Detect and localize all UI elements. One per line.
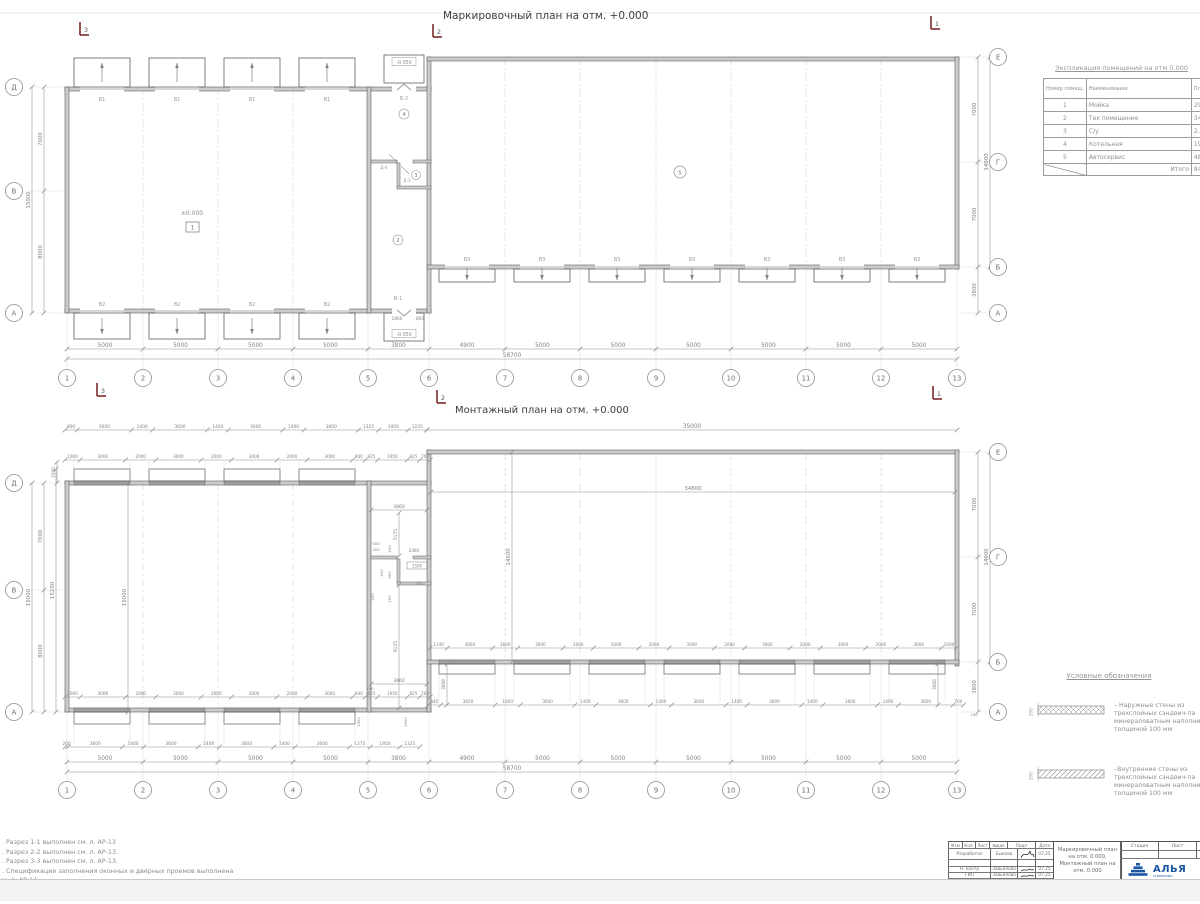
svg-text:300: 300 <box>372 547 380 552</box>
note-line: . Разрез 1-1 выполнен см. л. АР-13 <box>2 838 233 848</box>
svg-text:В-1: В-1 <box>394 296 402 302</box>
svg-text:8: 8 <box>578 786 582 794</box>
top-plan-dims: 5000500050005000380049005000500050005000… <box>26 55 992 362</box>
svg-text:В3: В3 <box>839 257 846 263</box>
bottom-plan-dims: 8003600140036001400360014003600132519501… <box>26 424 992 774</box>
svg-text:35000: 35000 <box>683 424 702 430</box>
svg-text:1600: 1600 <box>403 717 408 727</box>
svg-text:2: 2 <box>396 238 399 244</box>
sheet-edge <box>0 879 1200 901</box>
svg-text:1400: 1400 <box>288 424 299 430</box>
svg-text:В1: В1 <box>174 97 181 103</box>
svg-text:3000: 3000 <box>441 679 446 690</box>
company-logo: АЛЬЯ строительн <box>1120 859 1200 879</box>
svg-text:15000: 15000 <box>26 191 32 209</box>
svg-text:2: 2 <box>141 374 145 382</box>
svg-text:1140: 1140 <box>433 642 444 647</box>
title-block: ИзмКол.Лист№докПодпДатаРазработалБыкова0… <box>948 841 1200 880</box>
svg-text:3000: 3000 <box>932 679 937 690</box>
svg-text:1400: 1400 <box>127 741 138 747</box>
top-plan-openings: -0.050-0.050 <box>74 55 945 341</box>
svg-text:4: 4 <box>402 112 405 118</box>
table-row: 3С/у2,2 <box>1044 125 1200 138</box>
svg-text:-0.050: -0.050 <box>396 60 411 66</box>
svg-text:5000: 5000 <box>535 756 550 762</box>
room-table-title: Экспликация помещений на отм 0.000 <box>1043 64 1200 72</box>
stamp-cell: Кол. <box>962 842 975 849</box>
svg-text:В3: В3 <box>539 257 546 263</box>
svg-text:3: 3 <box>216 374 220 382</box>
svg-text:2: 2 <box>441 394 445 402</box>
legend-item-inner-wall: 100 –Внутренние стены изтрехслойных сэнд… <box>1028 766 1200 798</box>
top-plan-walls <box>65 57 959 313</box>
svg-text:4900: 4900 <box>460 756 475 762</box>
svg-text:7000: 7000 <box>972 207 978 221</box>
svg-text:7000: 7000 <box>972 102 978 116</box>
svg-text:В2: В2 <box>249 302 256 308</box>
svg-text:В3: В3 <box>614 257 621 263</box>
svg-text:825: 825 <box>409 691 417 696</box>
svg-text:3: 3 <box>216 786 220 794</box>
svg-text:Б: Б <box>996 658 1001 666</box>
svg-text:3: 3 <box>101 387 105 395</box>
svg-text:12: 12 <box>877 786 886 794</box>
svg-text:1950: 1950 <box>387 691 398 696</box>
svg-text:2000: 2000 <box>211 454 222 459</box>
svg-text:1000: 1000 <box>67 691 78 696</box>
svg-text:5000: 5000 <box>611 343 626 349</box>
diagonal-cell <box>1044 164 1087 176</box>
svg-text:1400: 1400 <box>137 424 148 430</box>
svg-text:3000: 3000 <box>324 691 335 696</box>
svg-text:Е: Е <box>996 53 1000 61</box>
svg-text:1325: 1325 <box>404 741 415 747</box>
svg-text:5000: 5000 <box>761 343 776 349</box>
svg-text:34800: 34800 <box>684 486 702 492</box>
svg-text:8125: 8125 <box>393 641 399 652</box>
svg-text:5000: 5000 <box>912 343 927 349</box>
top-plan-labels: В1В1В1В1В2В2В2В2В3В3В3В3В3В3В3В-2В-1Д-4Д… <box>99 10 921 321</box>
table-row: 5Автосервис486, <box>1044 151 1200 164</box>
svg-text:3000: 3000 <box>173 454 184 459</box>
svg-text:2000: 2000 <box>135 691 146 696</box>
svg-text:3600: 3600 <box>845 699 856 704</box>
room-number: 3 <box>1044 125 1087 138</box>
table-total-row: Итого841, <box>1044 164 1200 176</box>
room-name: Автосервис <box>1086 151 1191 164</box>
svg-text:8: 8 <box>578 374 582 382</box>
svg-text:5000: 5000 <box>98 343 113 349</box>
svg-text:3600: 3600 <box>250 424 261 430</box>
svg-text:5000: 5000 <box>98 756 113 762</box>
svg-text:4900: 4900 <box>460 343 475 349</box>
total-label: Итого <box>1086 164 1191 176</box>
svg-text:15000: 15000 <box>122 588 128 606</box>
svg-text:3600: 3600 <box>618 699 629 704</box>
svg-text:В3: В3 <box>464 257 471 263</box>
svg-text:Д-3: Д-3 <box>403 178 411 183</box>
room-name: Мойка <box>1086 99 1191 112</box>
svg-text:3000: 3000 <box>173 691 184 696</box>
svg-text:1660: 1660 <box>500 642 511 647</box>
legend-line: – Наружные стены из <box>1114 702 1200 710</box>
svg-text:В3: В3 <box>689 257 696 263</box>
svg-text:3800: 3800 <box>972 680 978 694</box>
svg-text:В3: В3 <box>764 257 771 263</box>
svg-text:700: 700 <box>421 454 429 459</box>
svg-text:В1: В1 <box>99 97 106 103</box>
svg-text:Б: Б <box>996 263 1001 271</box>
legend-line: трехслойных сэндвич-па <box>1114 710 1200 718</box>
svg-text:12: 12 <box>877 374 886 382</box>
svg-text:5000: 5000 <box>535 343 550 349</box>
extra-col <box>1196 842 1200 851</box>
svg-text:А: А <box>996 309 1001 317</box>
svg-text:3800: 3800 <box>391 756 406 762</box>
svg-text:15000: 15000 <box>26 588 32 606</box>
svg-text:900: 900 <box>387 571 392 579</box>
svg-text:-0.050: -0.050 <box>396 332 411 338</box>
svg-text:3: 3 <box>84 26 88 34</box>
svg-text:А: А <box>12 708 17 716</box>
col-name: Наименование <box>1086 79 1191 99</box>
cad-drawing: -0.050-0.050В1В1В1В1В2В2В2В2В3В3В3В3В3В3… <box>0 0 1200 900</box>
legend-text-outer: – Наружные стены изтрехслойных сэндвич-п… <box>1114 702 1200 734</box>
room-number: 5 <box>1044 151 1087 164</box>
note-line: . Разрез 2-2 выполнен см. л. АР-13. <box>2 848 233 858</box>
document-title-line2: Монтажный план на отм. 0.000 <box>1054 861 1121 875</box>
svg-text:5000: 5000 <box>323 343 338 349</box>
legend: Условные обозначения 100 – Наружные стен… <box>1028 672 1200 798</box>
svg-text:3000: 3000 <box>465 642 476 647</box>
svg-text:2: 2 <box>437 28 441 36</box>
stamp-cell: Лист <box>975 842 989 849</box>
svg-text:800: 800 <box>416 316 424 321</box>
svg-text:1225: 1225 <box>412 424 423 430</box>
svg-text:В2: В2 <box>99 302 106 308</box>
svg-text:7000: 7000 <box>972 497 978 511</box>
svg-text:4: 4 <box>291 786 295 794</box>
svg-text:2000: 2000 <box>800 642 811 647</box>
svg-text:Д: Д <box>11 479 16 487</box>
svg-text:Е: Е <box>996 448 1000 456</box>
svg-text:1325: 1325 <box>363 424 374 430</box>
svg-text:3000: 3000 <box>535 642 546 647</box>
svg-text:3600: 3600 <box>542 699 553 704</box>
svg-text:Д: Д <box>11 83 16 91</box>
svg-text:В-2: В-2 <box>400 96 408 102</box>
svg-text:1000: 1000 <box>67 454 78 459</box>
svg-text:А: А <box>996 708 1001 716</box>
legend-text-inner: –Внутренние стены изтрехслойных сэндвич-… <box>1114 766 1200 798</box>
svg-text:1950: 1950 <box>379 741 390 747</box>
svg-text:11: 11 <box>802 786 811 794</box>
svg-text:6: 6 <box>427 374 431 382</box>
stage-label: Стадия <box>1120 842 1158 851</box>
svg-text:11: 11 <box>802 374 811 382</box>
stamp-cell: №док <box>989 842 1007 849</box>
svg-text:1800: 1800 <box>392 316 403 321</box>
stamp-cell: Разработал <box>948 849 990 860</box>
svg-text:500: 500 <box>372 541 380 546</box>
svg-text:14500: 14500 <box>506 548 512 566</box>
svg-text:1400: 1400 <box>807 699 818 704</box>
svg-text:Г: Г <box>996 553 1000 561</box>
svg-text:9: 9 <box>654 374 658 382</box>
svg-text:8000: 8000 <box>38 644 44 658</box>
legend-line: толщиной 100 мм <box>1114 726 1200 734</box>
room-explication-table: Экспликация помещений на отм 0.000 Номер… <box>1043 64 1200 176</box>
svg-text:5000: 5000 <box>323 756 338 762</box>
signature-icon <box>1019 873 1035 878</box>
stamp-cell <box>1035 860 1053 867</box>
svg-text:3000: 3000 <box>249 454 260 459</box>
svg-text:3860: 3860 <box>393 678 405 684</box>
svg-text:3800: 3800 <box>972 283 978 297</box>
svg-text:3800: 3800 <box>391 343 406 349</box>
logo-subtext: строительн <box>1153 874 1172 878</box>
document-title-line1: Маркировочный план на отм. 0.000, <box>1054 847 1121 861</box>
svg-text:700: 700 <box>421 691 429 696</box>
legend-dim-label: 100 <box>1030 709 1035 717</box>
svg-text:2000: 2000 <box>135 454 146 459</box>
svg-text:Д-4: Д-4 <box>380 165 388 170</box>
svg-text:1500: 1500 <box>412 564 423 569</box>
svg-text:5: 5 <box>366 374 370 382</box>
svg-text:3600: 3600 <box>90 741 101 747</box>
svg-text:1500: 1500 <box>51 467 56 478</box>
svg-text:5000: 5000 <box>173 756 188 762</box>
svg-text:3000: 3000 <box>97 691 108 696</box>
svg-text:1400: 1400 <box>212 424 223 430</box>
svg-text:1400: 1400 <box>203 741 214 747</box>
svg-text:3000: 3000 <box>97 454 108 459</box>
svg-text:3000: 3000 <box>611 642 622 647</box>
svg-text:825: 825 <box>409 454 417 459</box>
svg-text:3000: 3000 <box>838 642 849 647</box>
svg-text:2000: 2000 <box>287 691 298 696</box>
svg-text:7000: 7000 <box>38 529 44 543</box>
svg-text:5000: 5000 <box>912 756 927 762</box>
room-area: 297, <box>1191 99 1200 112</box>
room-name: Котельная <box>1086 138 1191 151</box>
svg-text:1400: 1400 <box>883 699 894 704</box>
svg-text:1400: 1400 <box>731 699 742 704</box>
stamp-cell <box>1017 860 1035 867</box>
svg-text:840: 840 <box>355 691 363 696</box>
svg-text:200: 200 <box>370 593 375 601</box>
svg-text:±0.000: ±0.000 <box>181 210 203 217</box>
svg-text:5000: 5000 <box>248 756 263 762</box>
svg-text:3600: 3600 <box>241 741 252 747</box>
svg-text:7000: 7000 <box>38 132 44 146</box>
stage-sheet-cells <box>1120 851 1200 859</box>
svg-text:1: 1 <box>65 374 69 382</box>
svg-text:3600: 3600 <box>165 741 176 747</box>
svg-text:7: 7 <box>503 374 507 382</box>
svg-text:3600: 3600 <box>693 699 704 704</box>
note-line: . Спецификация заполнения оконных и двер… <box>2 867 233 877</box>
room-name: С/у <box>1086 125 1191 138</box>
svg-text:100: 100 <box>415 581 423 586</box>
table-row: 2Тех помещение34, <box>1044 112 1200 125</box>
svg-text:3600: 3600 <box>99 424 110 430</box>
svg-text:Г: Г <box>996 158 1000 166</box>
svg-text:1375: 1375 <box>354 741 365 747</box>
svg-text:10: 10 <box>727 374 736 382</box>
table-row: 4Котельная19, <box>1044 138 1200 151</box>
svg-text:1000: 1000 <box>944 642 955 647</box>
stamp-cell <box>1017 849 1035 860</box>
svg-text:1660: 1660 <box>502 699 513 704</box>
svg-text:1: 1 <box>191 225 195 232</box>
signature-icon <box>1019 849 1035 859</box>
svg-text:5000: 5000 <box>611 756 626 762</box>
svg-text:1500: 1500 <box>356 717 361 727</box>
legend-line: минераловатным наполни <box>1114 718 1200 726</box>
svg-text:100: 100 <box>387 545 392 553</box>
svg-text:5175: 5175 <box>393 529 399 540</box>
svg-text:800: 800 <box>67 424 76 430</box>
svg-text:7000: 7000 <box>972 602 978 616</box>
svg-text:2000: 2000 <box>724 642 735 647</box>
svg-text:58700: 58700 <box>503 353 522 359</box>
svg-text:1: 1 <box>65 786 69 794</box>
room-name: Тех помещение <box>1086 112 1191 125</box>
svg-text:825: 825 <box>367 454 375 459</box>
svg-text:2000: 2000 <box>876 642 887 647</box>
svg-text:3000: 3000 <box>249 691 260 696</box>
svg-text:5000: 5000 <box>686 343 701 349</box>
inner-wall-hatch-icon <box>1036 766 1106 782</box>
svg-text:3000: 3000 <box>762 642 773 647</box>
svg-text:5000: 5000 <box>248 343 263 349</box>
total-value: 841, <box>1191 164 1200 176</box>
svg-text:3600: 3600 <box>920 699 931 704</box>
svg-text:3: 3 <box>414 173 417 179</box>
outer-wall-hatch-icon <box>1036 702 1106 718</box>
legend-title: Условные обозначения <box>1028 672 1190 680</box>
section-marks: 321321 <box>80 16 942 403</box>
room-area: 34, <box>1191 112 1200 125</box>
svg-text:2000: 2000 <box>573 642 584 647</box>
svg-text:8000: 8000 <box>38 245 44 259</box>
stamp-cell <box>948 860 990 867</box>
svg-text:100: 100 <box>387 595 392 603</box>
svg-text:2: 2 <box>141 786 145 794</box>
svg-text:825: 825 <box>367 691 375 696</box>
svg-text:2460: 2460 <box>409 548 420 553</box>
svg-text:В: В <box>12 187 17 195</box>
svg-text:9: 9 <box>654 786 658 794</box>
svg-text:3600: 3600 <box>463 699 474 704</box>
svg-text:400: 400 <box>379 569 384 577</box>
svg-text:160: 160 <box>366 686 374 691</box>
document-title: Маркировочный план на отм. 0.000, Монтаж… <box>1053 842 1122 879</box>
svg-text:200: 200 <box>62 741 71 747</box>
stamp-cell: Подп <box>1007 842 1035 849</box>
svg-text:1: 1 <box>937 390 941 398</box>
svg-text:1400: 1400 <box>656 699 667 704</box>
sheet-label: Лист <box>1158 842 1196 851</box>
svg-text:700: 700 <box>954 699 962 704</box>
svg-text:1950: 1950 <box>388 424 399 430</box>
svg-text:3600: 3600 <box>769 699 780 704</box>
legend-line: трехслойных сэндвич-па <box>1114 774 1200 782</box>
svg-text:5000: 5000 <box>836 343 851 349</box>
table-header-row: Номер помещ.НаименованиеПлощадь <box>1044 79 1200 99</box>
signature-icon <box>1019 867 1035 872</box>
svg-text:3000: 3000 <box>913 642 924 647</box>
legend-line: –Внутренние стены из <box>1114 766 1200 774</box>
svg-text:7: 7 <box>503 786 507 794</box>
legend-line: толщиной 100 мм <box>1114 790 1200 798</box>
legend-item-outer-wall: 100 – Наружные стены изтрехслойных сэндв… <box>1028 702 1200 734</box>
svg-text:5000: 5000 <box>761 756 776 762</box>
svg-text:В: В <box>12 586 17 594</box>
svg-text:3000: 3000 <box>686 642 697 647</box>
logo-triangle-icon <box>1127 860 1149 878</box>
svg-text:3600: 3600 <box>317 741 328 747</box>
svg-text:5: 5 <box>366 786 370 794</box>
stamp-cell: Быкова <box>990 849 1017 860</box>
bottom-plan-axes: 12345678910111213ДВАЕГБАМонтажный план н… <box>6 405 1007 799</box>
svg-text:2000: 2000 <box>287 454 298 459</box>
svg-text:1400: 1400 <box>279 741 290 747</box>
drawing-sheet: -0.050-0.050В1В1В1В1В2В2В2В2В3В3В3В3В3В3… <box>0 0 1200 900</box>
table-row: 1Мойка297, <box>1044 99 1200 112</box>
stamp-cell: Дата <box>1035 842 1053 849</box>
logo-text: АЛЬЯ <box>1153 865 1186 874</box>
svg-text:А: А <box>12 309 17 317</box>
room-number: 4 <box>1044 138 1087 151</box>
svg-text:Монтажный план на отм. +0.000: Монтажный план на отм. +0.000 <box>455 405 629 416</box>
svg-text:58700: 58700 <box>503 766 522 772</box>
room-table: Номер помещ.НаименованиеПлощадь1Мойка297… <box>1043 78 1200 176</box>
svg-text:3600: 3600 <box>174 424 185 430</box>
col-area: Площадь <box>1191 79 1200 99</box>
svg-text:Маркировочный план на отм. +0.: Маркировочный план на отм. +0.000 <box>443 10 648 22</box>
room-area: 19, <box>1191 138 1200 151</box>
room-area: 486, <box>1191 151 1200 164</box>
svg-text:100: 100 <box>970 712 978 717</box>
svg-text:1400: 1400 <box>580 699 591 704</box>
svg-text:2000: 2000 <box>211 691 222 696</box>
stamp-cell <box>990 860 1017 867</box>
svg-text:10: 10 <box>727 786 736 794</box>
svg-text:5000: 5000 <box>836 756 851 762</box>
svg-text:6: 6 <box>427 786 431 794</box>
svg-text:2000: 2000 <box>649 642 660 647</box>
svg-text:1: 1 <box>935 20 939 28</box>
svg-text:1950: 1950 <box>387 454 398 459</box>
stage-sheet-header: Стадия Лист <box>1120 842 1200 851</box>
legend-line: минераловатным наполни <box>1114 782 1200 790</box>
svg-text:В1: В1 <box>324 97 331 103</box>
svg-text:13: 13 <box>953 374 962 382</box>
top-plan-axes: 12345678910111213ДВАЕГБА <box>6 49 1007 387</box>
svg-text:В3: В3 <box>914 257 921 263</box>
stamp-cell: Изм <box>948 842 962 849</box>
svg-text:В2: В2 <box>324 302 331 308</box>
svg-text:5000: 5000 <box>173 343 188 349</box>
svg-text:15200: 15200 <box>50 581 56 599</box>
svg-text:4: 4 <box>291 374 295 382</box>
col-number: Номер помещ. <box>1044 79 1087 99</box>
room-number: 1 <box>1044 99 1087 112</box>
svg-text:5000: 5000 <box>686 756 701 762</box>
svg-text:3000: 3000 <box>324 454 335 459</box>
